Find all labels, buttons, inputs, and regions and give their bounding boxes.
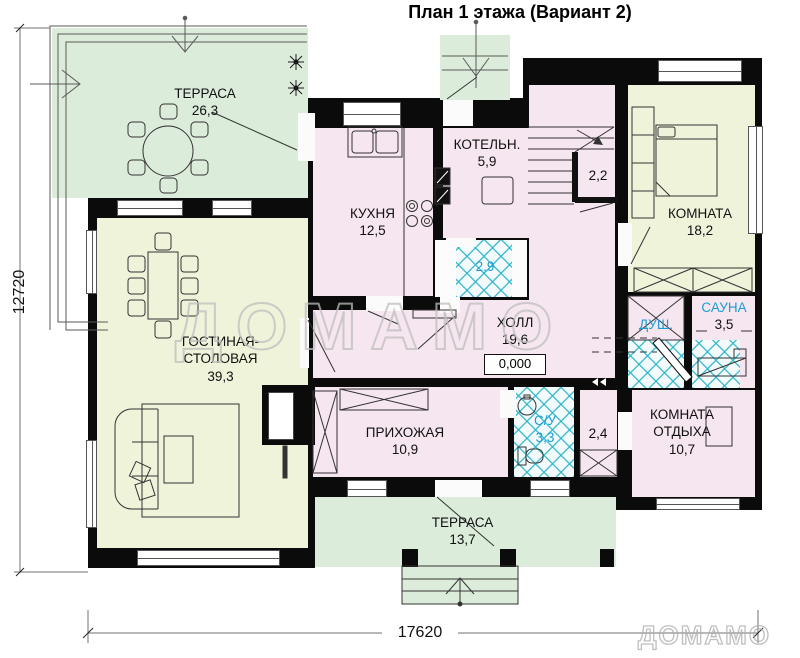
vent-mark [600,378,606,386]
watermark-center: ДОМАМО [175,288,566,364]
dimension-left: 12720 [11,254,29,330]
room-label-stair-closet: 2,2 [577,167,619,184]
wardrobe [313,391,337,473]
page-title: План 1 этажа (Вариант 2) [320,2,720,23]
kitchen-sink [348,127,402,157]
tv [283,446,287,478]
rug [142,404,239,517]
wardrobe [634,268,752,292]
door-swing [447,77,477,99]
room-label-terrace-bottom: ТЕРРАСА13,7 [395,514,530,549]
sofa [115,409,158,509]
boiler-unit [482,177,513,204]
toilet [518,447,543,465]
dimension-bottom: 17620 [382,624,458,642]
plant-icon [288,54,304,70]
sauna-bench [698,349,746,376]
room-label-boiler: КОТЕЛЬН.5,9 [437,136,537,171]
closet [632,107,654,218]
storage-box [580,450,617,476]
room-label-rest-room: КОМНАТА ОТДЫХА10,7 [632,406,732,458]
plant-icon [288,80,304,96]
terrace-steps-lines [402,566,518,606]
room-label-bedroom: КОМНАТА18,2 [645,205,755,240]
room-label-entry-hall: ПРИХОЖАЯ10,9 [345,424,465,459]
shower-door [653,338,692,382]
room-label-kitchen: КУХНЯ12,5 [320,205,425,240]
vent-mark [592,378,598,386]
room-label-closet: 2,4 [578,425,618,442]
coffee-table [164,436,193,483]
room-label-sauna: САУНА3,5 [694,299,754,334]
room-label-bath-small: 2,9 [460,258,510,275]
bed [656,125,717,196]
room-label-terrace-top: ТЕРРАСА26,3 [140,85,270,120]
room-label-wc: С/У3,3 [520,412,570,447]
wardrobe [340,389,428,410]
room-label-shower: ДУШ. [630,316,682,333]
watermark-corner: ДОМАМО [638,620,771,651]
floor-plan: План 1 этажа (Вариант 2) [0,0,800,658]
